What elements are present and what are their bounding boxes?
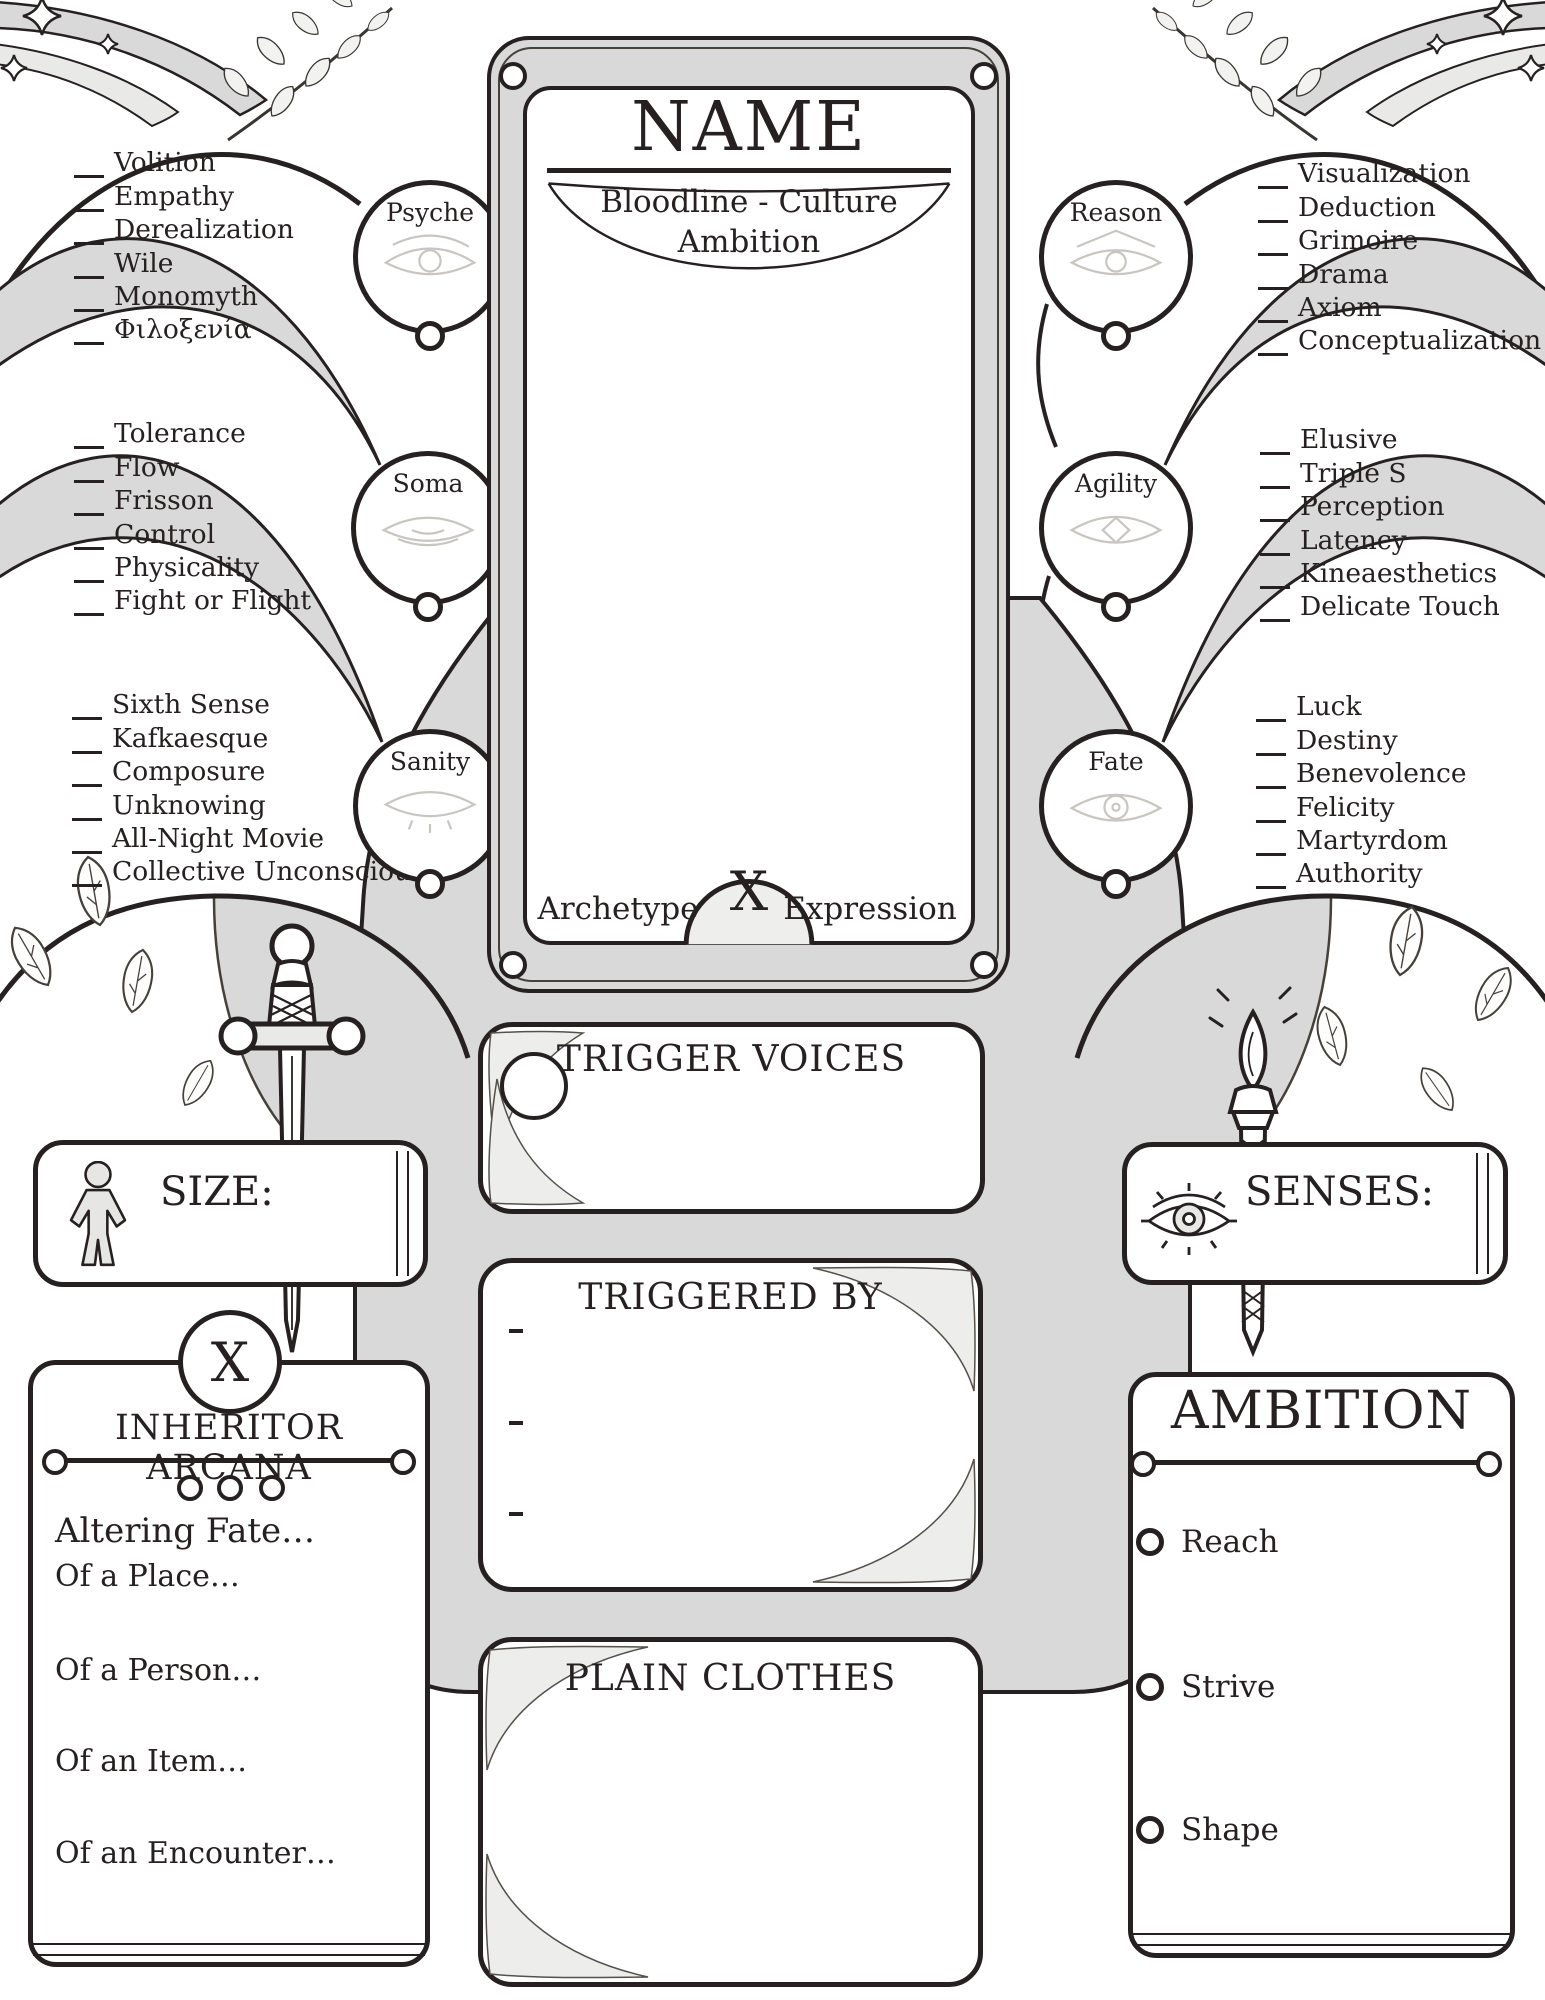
plain-clothes-box[interactable]: PLAIN CLOTHES — [478, 1637, 983, 1987]
triggered-by-title: TRIGGERED BY — [483, 1277, 978, 1318]
ambition-footer-lines — [1133, 1933, 1510, 1946]
skill-row: Empathy — [74, 178, 294, 211]
arcana-bar — [57, 1458, 401, 1463]
right-laurel-icon — [1153, 0, 1327, 140]
skill-row: Benevolence — [1256, 756, 1467, 789]
trigger-voices-box[interactable]: TRIGGER VOICES — [478, 1022, 985, 1214]
skill-rating-blank[interactable] — [1258, 299, 1288, 323]
stat-label-psyche: Psyche — [358, 198, 502, 227]
stat-label-fate: Fate — [1044, 747, 1188, 776]
skill-label: Luck — [1296, 692, 1362, 722]
agility-rating-node[interactable] — [1101, 592, 1131, 622]
stat-label-agility: Agility — [1044, 469, 1188, 498]
skill-rating-blank[interactable] — [1260, 598, 1290, 622]
skill-label: Drama — [1298, 260, 1389, 290]
skill-rating-blank[interactable] — [1258, 165, 1288, 189]
skill-row: Wile — [74, 245, 294, 278]
reason-eye-icon — [1061, 229, 1171, 291]
skill-row: Control — [74, 516, 311, 549]
skill-rating-blank[interactable] — [1260, 465, 1290, 489]
trigger-voices-title: TRIGGER VOICES — [483, 1039, 980, 1080]
skill-label: Fight or Flight — [114, 586, 311, 616]
skill-rating-blank[interactable] — [74, 221, 104, 245]
left-leaves-icon — [2, 854, 220, 1110]
card-ambition-label: Ambition — [527, 224, 971, 260]
skill-rating-blank[interactable] — [1256, 732, 1286, 756]
skill-label: All-Night Movie — [112, 824, 324, 854]
skill-list-psyche: Volition Empathy Derealization Wile Mono… — [74, 145, 294, 345]
arcana-item: Altering Fate… — [55, 1511, 315, 1551]
skill-row: Authority — [1256, 856, 1467, 889]
skill-rating-blank[interactable] — [74, 492, 104, 516]
skill-rating-blank[interactable] — [74, 255, 104, 279]
skill-rating-blank[interactable] — [74, 459, 104, 483]
skill-label: Flow — [114, 453, 180, 483]
card-corner-dot — [499, 62, 527, 90]
ambition-option-label: Shape — [1181, 1812, 1279, 1848]
skill-row: Frisson — [74, 483, 311, 516]
skill-row: Monomyth — [74, 279, 294, 312]
arcana-item: Of a Person… — [55, 1653, 261, 1688]
skill-label: Frisson — [114, 486, 214, 516]
ambition-option-label: Strive — [1181, 1669, 1275, 1705]
senses-box-spine — [1476, 1153, 1489, 1274]
skill-rating-blank[interactable] — [74, 526, 104, 550]
ambition-bar — [1155, 1460, 1488, 1465]
skill-row: Latency — [1260, 522, 1500, 555]
skill-row: Visualization — [1258, 156, 1541, 189]
ambition-bar-end-circle[interactable] — [1130, 1451, 1156, 1477]
size-label: SIZE: — [160, 1169, 274, 1215]
skill-row: Luck — [1256, 689, 1467, 722]
skill-label: Volition — [114, 148, 216, 178]
skill-rating-blank[interactable] — [1258, 266, 1288, 290]
left-laurel-icon — [219, 0, 393, 140]
stat-label-reason: Reason — [1044, 198, 1188, 227]
sanity-rating-node[interactable] — [415, 869, 445, 899]
skill-label: Kafkaesque — [112, 724, 268, 754]
ambition-bar-end-circle[interactable] — [1476, 1451, 1502, 1477]
card-corner-dot — [499, 951, 527, 979]
skill-row: Sixth Sense — [72, 687, 425, 720]
arcana-use-circle[interactable] — [177, 1475, 203, 1501]
skill-row: Delicate Touch — [1260, 589, 1500, 622]
skill-list-soma: Tolerance Flow Frisson Control Physicali… — [74, 416, 311, 616]
skill-label: Wile — [114, 249, 173, 279]
skill-label: Tolerance — [114, 419, 246, 449]
character-sheet-page: Psyche Soma Sanity Reason — [0, 0, 1545, 2000]
ambition-title: AMBITION — [1133, 1381, 1510, 1441]
psyche-rating-node[interactable] — [415, 321, 445, 351]
card-portrait-area[interactable]: NAME Bloodline - Culture Ambition Archet… — [523, 86, 975, 945]
skill-rating-blank[interactable] — [1256, 765, 1286, 789]
skill-label: Derealization — [114, 215, 294, 245]
skill-rating-blank[interactable] — [72, 696, 102, 720]
bloodline-culture-label: Bloodline - Culture — [527, 184, 971, 220]
plain-clothes-title: PLAIN CLOTHES — [483, 1658, 978, 1699]
agility-eye-icon — [1061, 500, 1171, 562]
skill-label: Delicate Touch — [1300, 592, 1500, 622]
skill-label: Physicality — [114, 553, 259, 583]
list-dash — [509, 1329, 523, 1333]
skill-row: Collective Unconscious — [72, 854, 425, 887]
skill-rating-blank[interactable] — [1258, 332, 1288, 356]
skill-label: Conceptualization — [1298, 326, 1541, 356]
arcana-footer-lines — [33, 1943, 425, 1956]
skill-rating-blank[interactable] — [74, 592, 104, 616]
skill-label: Axiom — [1298, 293, 1382, 323]
top-left-flourish-icon — [0, 0, 266, 126]
skill-list-agility: Elusive Triple S Perception Latency Kine… — [1260, 422, 1500, 622]
skill-label: Visualization — [1298, 159, 1470, 189]
list-dash — [509, 1421, 523, 1425]
inheritor-arcana-x-label: X — [211, 1331, 249, 1394]
skill-label: Control — [114, 520, 215, 550]
size-box[interactable]: SIZE: — [33, 1140, 428, 1287]
skill-rating-blank[interactable] — [72, 730, 102, 754]
stat-label-sanity: Sanity — [358, 747, 502, 776]
skill-rating-blank[interactable] — [72, 797, 102, 821]
skill-row: Derealization — [74, 212, 294, 245]
skill-row: Flow — [74, 449, 311, 482]
skill-label: Perception — [1300, 492, 1445, 522]
skill-row: Kineaesthetics — [1260, 556, 1500, 589]
skill-rating-blank[interactable] — [74, 321, 104, 345]
stat-circle-reason[interactable]: Reason — [1039, 180, 1193, 334]
skill-label: Deduction — [1298, 193, 1436, 223]
skill-rating-blank[interactable] — [74, 288, 104, 312]
size-box-spine — [396, 1151, 409, 1276]
senses-eye-icon — [1141, 1179, 1237, 1255]
soma-eye-icon — [373, 500, 483, 562]
skill-row: Deduction — [1258, 189, 1541, 222]
skill-label: Elusive — [1300, 425, 1398, 455]
skill-row: Axiom — [1258, 290, 1541, 323]
skill-row: Martyrdom — [1256, 823, 1467, 856]
skill-rating-blank[interactable] — [1260, 431, 1290, 455]
list-dash — [509, 1512, 523, 1516]
arcana-use-circle[interactable] — [259, 1475, 285, 1501]
stat-circle-fate[interactable]: Fate — [1039, 729, 1193, 883]
arcana-item: Of a Place… — [55, 1559, 240, 1594]
skill-rating-blank[interactable] — [1256, 799, 1286, 823]
skill-row: Φιλοξενία — [74, 312, 294, 345]
name-field-label: NAME — [527, 92, 971, 164]
skill-label: Unknowing — [112, 791, 266, 821]
skill-rating-blank[interactable] — [74, 425, 104, 449]
character-card: NAME Bloodline - Culture Ambition Archet… — [487, 36, 1010, 993]
stat-circle-soma[interactable]: Soma — [351, 451, 505, 605]
soma-rating-node[interactable] — [413, 592, 443, 622]
skill-rating-blank[interactable] — [72, 863, 102, 887]
stat-circle-psyche[interactable]: Psyche — [353, 180, 507, 334]
skill-label: Destiny — [1296, 726, 1398, 756]
skill-label: Grimoire — [1298, 226, 1418, 256]
stat-circle-agility[interactable]: Agility — [1039, 451, 1193, 605]
arcana-bar-end-circle[interactable] — [390, 1449, 416, 1475]
skill-label: Monomyth — [114, 282, 258, 312]
skill-rating-blank[interactable] — [72, 830, 102, 854]
skill-rating-blank[interactable] — [74, 154, 104, 178]
arcana-use-circle[interactable] — [217, 1475, 243, 1501]
skill-row: Triple S — [1260, 455, 1500, 488]
skill-rating-blank[interactable] — [1260, 565, 1290, 589]
stat-circle-sanity[interactable]: Sanity — [353, 729, 507, 883]
ambition-box[interactable]: AMBITION Reach Strive Shape — [1128, 1372, 1515, 1958]
skill-label: Kineaesthetics — [1300, 559, 1497, 589]
skill-rating-blank[interactable] — [1258, 199, 1288, 223]
skill-row: Perception — [1260, 489, 1500, 522]
skill-row: Tolerance — [74, 416, 311, 449]
skill-row: Volition — [74, 145, 294, 178]
triggered-by-box[interactable]: TRIGGERED BY — [478, 1258, 983, 1592]
skill-row: Physicality — [74, 550, 311, 583]
top-right-flourish-icon — [1279, 0, 1545, 126]
skill-rating-blank[interactable] — [1256, 865, 1286, 889]
skill-row: Conceptualization — [1258, 323, 1541, 356]
skill-row: Drama — [1258, 256, 1541, 289]
skill-label: Felicity — [1296, 793, 1395, 823]
skill-label: Latency — [1300, 526, 1407, 556]
skill-label: Benevolence — [1296, 759, 1467, 789]
skill-label: Composure — [112, 757, 265, 787]
senses-box[interactable]: SENSES: — [1122, 1142, 1508, 1285]
skill-rating-blank[interactable] — [74, 559, 104, 583]
fate-eye-icon — [1061, 778, 1171, 840]
arcana-item: Of an Item… — [55, 1744, 247, 1779]
psyche-eye-icon — [375, 229, 485, 291]
ambition-option-circle-reach[interactable] — [1136, 1528, 1164, 1556]
skill-list-reason: Visualization Deduction Grimoire Drama A… — [1258, 156, 1541, 356]
skill-label: Martyrdom — [1296, 826, 1448, 856]
skill-row: Fight or Flight — [74, 583, 311, 616]
skill-row: Elusive — [1260, 422, 1500, 455]
arcana-item: Of an Encounter… — [55, 1836, 336, 1871]
skill-row: Destiny — [1256, 722, 1467, 755]
card-corner-dot — [970, 62, 998, 90]
skill-label: Sixth Sense — [112, 690, 270, 720]
right-leaves-icon — [1312, 904, 1520, 1116]
skill-label: Φιλοξενία — [114, 315, 252, 345]
reason-rating-node[interactable] — [1101, 321, 1131, 351]
senses-label: SENSES: — [1245, 1169, 1434, 1215]
skill-rating-blank[interactable] — [72, 763, 102, 787]
sanity-eye-icon — [375, 778, 485, 840]
person-icon — [66, 1161, 130, 1269]
skill-label: Empathy — [114, 182, 234, 212]
ambition-option-circle-shape[interactable] — [1136, 1816, 1164, 1844]
skill-rating-blank[interactable] — [1256, 698, 1286, 722]
skill-rating-blank[interactable] — [1260, 532, 1290, 556]
expression-label: Expression — [775, 891, 965, 927]
skill-label: Authority — [1296, 859, 1423, 889]
skill-rating-blank[interactable] — [1256, 832, 1286, 856]
skill-rating-blank[interactable] — [1258, 232, 1288, 256]
skill-row: Felicity — [1256, 789, 1467, 822]
stat-label-soma: Soma — [356, 469, 500, 498]
arcana-bar-end-circle[interactable] — [42, 1449, 68, 1475]
skill-rating-blank[interactable] — [74, 188, 104, 212]
inheritor-arcana-x-circle[interactable]: X — [178, 1310, 282, 1414]
skill-list-fate: Luck Destiny Benevolence Felicity Martyr… — [1256, 689, 1467, 889]
skill-label: Triple S — [1300, 459, 1407, 489]
inheritor-arcana-box[interactable]: INHERITOR ARCANA Altering Fate… Of a Pla… — [28, 1360, 430, 1967]
skill-rating-blank[interactable] — [1260, 498, 1290, 522]
ambition-option-circle-strive[interactable] — [1136, 1673, 1164, 1701]
skill-row: Grimoire — [1258, 223, 1541, 256]
fate-rating-node[interactable] — [1101, 869, 1131, 899]
ambition-option-label: Reach — [1181, 1524, 1279, 1560]
card-corner-dot — [970, 951, 998, 979]
